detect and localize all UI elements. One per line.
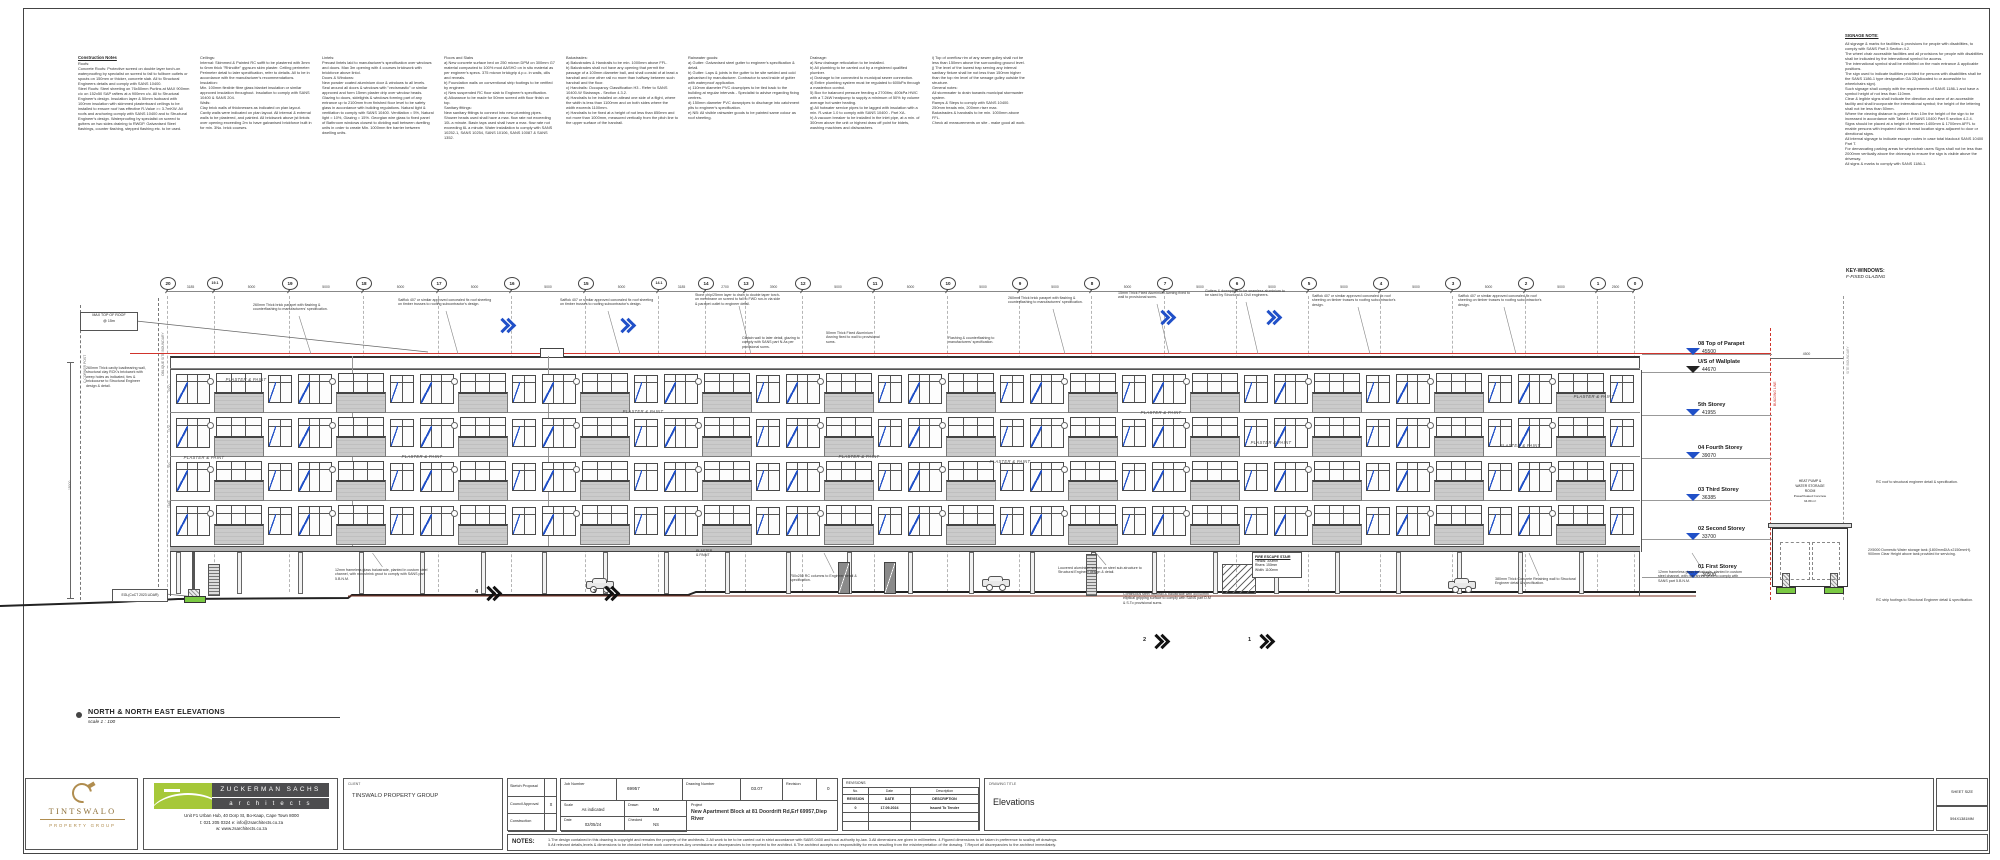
window-casement-double: [1366, 375, 1390, 403]
floor-line: [170, 456, 1640, 457]
annotation-callout: 260mm Thick cavity loadbearing wall, str…: [86, 366, 150, 388]
balcony-balustrade-panel: [214, 480, 264, 501]
window-casement-triple: [1396, 462, 1430, 492]
window-casement-triple: [1274, 374, 1308, 404]
balcony-balustrade-panel: [458, 436, 508, 457]
window-code-tag: [451, 510, 458, 517]
window-casement-double: [1366, 507, 1390, 535]
grid-dim-value: 2500: [1612, 285, 1620, 289]
window-code-tag: [573, 422, 580, 429]
ground-column: [1518, 552, 1523, 594]
zs-address-3: w: www.zsarchitects.co.za: [144, 826, 339, 833]
plaster-paint-label: PLASTER & PAINT: [1574, 394, 1615, 399]
drawn-checked-col: DrawnNMCheckedNS: [625, 801, 687, 832]
window-casement-double: [1122, 507, 1146, 535]
titleblock-notes-label: NOTES:: [512, 839, 535, 845]
approval-box: Sketch ProposalCouncil ApprovalxConstruc…: [507, 778, 557, 831]
grid-bubble: 14.1: [651, 277, 667, 290]
ground-column: [1335, 552, 1340, 594]
grid-dim-value: 3900: [770, 285, 778, 289]
window-casement-triple: [1030, 418, 1064, 448]
grid-bubble: 5: [1301, 277, 1317, 290]
grid-dim-value: 5000: [1124, 285, 1132, 289]
job-cell-text: Drawing Number: [686, 782, 740, 786]
window-casement-double: [634, 463, 658, 491]
window-casement-double: [1366, 463, 1390, 491]
annotation-callout: Stone chip/25mm layer to drain to double…: [695, 293, 783, 306]
level-label: 04 Fourth Storey: [1698, 445, 1742, 451]
window-casement-triple: [542, 374, 576, 404]
notes-column: Lintels: Precast lintels laid to manufac…: [322, 55, 434, 155]
window-code-tag: [1305, 466, 1312, 473]
window-casement-double: [1366, 419, 1390, 447]
job-top-row: Job Number69957Drawing Number03.07Revisi…: [561, 779, 838, 801]
titleblock-note-line-2: 5.All relevant details,levels & dimensio…: [548, 843, 1978, 848]
balcony-balustrade-panel: [580, 436, 630, 457]
window-casement-triple: [298, 506, 332, 536]
window-casement-double: [268, 419, 292, 447]
balcony-balustrade-panel: [336, 392, 386, 413]
window-casement-triple: [420, 462, 454, 492]
window-code-tag: [1427, 378, 1434, 385]
facade-dim-value: 2300: [168, 384, 172, 392]
window-casement-triple: [176, 506, 210, 536]
window-code-tag: [207, 466, 214, 473]
notes-column: Rainwater goods: a) Gutter: Galvanised s…: [688, 55, 800, 155]
approval-label: Sketch Proposal: [510, 784, 544, 792]
grid-dim-value: 5000: [397, 285, 405, 289]
car-silhouette: [982, 576, 1008, 587]
notes-column: Ceilings: Internal: Skimmed & Painted RC…: [200, 55, 312, 155]
window-code-tag: [1305, 510, 1312, 517]
zs-name: ZUCKERMAN SACHS: [212, 786, 329, 793]
grid-bubble: 7: [1157, 277, 1173, 290]
job-cell-text: 69957: [627, 786, 682, 791]
grid-dim-value: 5000: [248, 285, 256, 289]
window-code-tag: [695, 422, 702, 429]
window-code-tag: [1427, 510, 1434, 517]
ground-column: [237, 552, 242, 594]
boundary-line: [1770, 328, 1771, 600]
balcony-balustrade-panel: [1312, 392, 1362, 413]
window-casement-triple: [1152, 462, 1186, 492]
window-code-tag: [1061, 378, 1068, 385]
ground-column: [1213, 552, 1218, 594]
window-casement-double: [756, 463, 780, 491]
window-casement-triple: [1030, 462, 1064, 492]
window-casement-triple: [908, 418, 942, 448]
rev-cell: [869, 822, 911, 831]
ground-column: [969, 552, 974, 594]
job-cell-value: 69957: [617, 779, 683, 801]
approval-mark: x: [544, 797, 557, 814]
window-casement-double: [1244, 507, 1268, 535]
window-code-tag: [1549, 510, 1556, 517]
ground-wall-edge: [1639, 552, 1640, 596]
balcony-balustrade-panel: [946, 524, 996, 545]
window-code-tag: [817, 466, 824, 473]
car-wheel: [1452, 586, 1459, 593]
rev-cell: [911, 822, 979, 831]
window-code-tag: [1305, 378, 1312, 385]
rev-subheader-row: No.DateDescription: [843, 787, 979, 795]
window-code-tag: [939, 378, 946, 385]
grid-bubble: 15: [578, 277, 594, 290]
window-casement-double: [1000, 507, 1024, 535]
balcony-balustrade-panel: [1190, 480, 1240, 501]
window-code-tag: [573, 378, 580, 385]
dim-end-tick: [67, 362, 74, 363]
balcony-balustrade-panel: [458, 524, 508, 545]
car-cabin: [988, 576, 1003, 581]
signage-note-body: All signage & marks for facilities & pro…: [1845, 41, 1985, 166]
window-casement-double: [1488, 375, 1512, 403]
plaster-paint-label: PLASTER & PAINT: [226, 377, 267, 382]
window-code-tag: [817, 422, 824, 429]
window-casement-triple: [542, 506, 576, 536]
plaster-paint-label: PLASTER & PAINT: [1141, 410, 1182, 415]
tintswalo-divider: [40, 819, 125, 820]
window-code-tag: [451, 466, 458, 473]
grid-bubble: 3: [1445, 277, 1461, 290]
window-code-tag: [817, 510, 824, 517]
level-marker-icon: [1686, 533, 1700, 540]
water-tank-outline: [1780, 542, 1810, 580]
facade-dim-value: 1100: [168, 425, 172, 432]
window-casement-double: [390, 463, 414, 491]
rev-row: [843, 822, 979, 831]
grid-dim-value: 5000: [471, 285, 479, 289]
window-casement-double: [512, 507, 536, 535]
boundary-label: OBLIQUE SITE BOUNDARY: [161, 332, 165, 376]
boundary-dim-value: 4500: [1803, 352, 1811, 356]
job-cell-value: 03.07: [741, 779, 783, 801]
window-code-tag: [939, 466, 946, 473]
annotation-callout: 50mm Thick Fixed Aluminium Awning fixed …: [826, 331, 884, 344]
zs-sub: a r c h i t e c t s: [212, 797, 329, 807]
plaster-paint-label: PLASTER & PAINT: [623, 409, 664, 414]
balcony-balustrade-panel: [458, 480, 508, 501]
window-casement-triple: [1030, 506, 1064, 536]
window-casement-double: [390, 419, 414, 447]
job-cell-label: Job Number: [561, 779, 617, 801]
window-code-tag: [329, 378, 336, 385]
window-casement-triple: [1152, 374, 1186, 404]
window-casement-triple: [908, 374, 942, 404]
drawing-title-label: DRAWING TITLE: [989, 782, 1016, 786]
grid-dim-value: 3185: [187, 285, 195, 289]
window-casement-triple: [908, 462, 942, 492]
window-casement-triple: [1518, 462, 1552, 492]
view-scale: scale 1 : 100: [88, 720, 340, 725]
egl-note-box: EGL(CoCT 2023 LiDAR): [112, 589, 168, 602]
ground-column: [542, 552, 547, 594]
job-cell-label: Revision: [783, 779, 817, 801]
window-code-tag: [451, 378, 458, 385]
zs-address-2: t: 021 205 0324 e: info@zsarchitects.co.…: [144, 820, 339, 827]
notes-column-body: Roofs: Concrete Roofs: Protective screed…: [78, 61, 190, 131]
drawing-title: Elevations: [993, 797, 1035, 807]
grid-dim-value: 5000: [1051, 285, 1059, 289]
grid-dimension-line: [167, 291, 1634, 292]
grid-bubble: 19.1: [207, 277, 223, 290]
balcony-balustrade-panel: [946, 436, 996, 457]
balcony-balustrade-panel: [1190, 392, 1240, 413]
level-marker-icon: [1686, 452, 1700, 459]
notes-column-body: Balustrades: a) Balustrades & Handrails …: [566, 55, 678, 125]
grid-bubble: 14: [698, 277, 714, 290]
window-code-tag: [1427, 466, 1434, 473]
balcony-balustrade-panel: [702, 524, 752, 545]
window-casement-double: [268, 463, 292, 491]
annotation-callout: Safflok 407 or similar approved conceale…: [560, 298, 656, 307]
window-code-tag: [817, 378, 824, 385]
balcony-balustrade-panel: [214, 436, 264, 457]
approval-label: Construction: [510, 819, 544, 827]
facade-dim-value: 730: [168, 462, 172, 468]
window-casement-double: [756, 419, 780, 447]
rev-cell: Issued To Tender: [911, 804, 979, 813]
ground-column: [908, 552, 913, 594]
balcony-balustrade-panel: [1434, 436, 1484, 457]
balcony-balustrade-panel: [1556, 480, 1606, 501]
window-casement-double: [1244, 463, 1268, 491]
entrance-door: [884, 562, 896, 594]
level-marker-icon: [1686, 366, 1700, 373]
grid-dim-value: 3185: [678, 285, 686, 289]
notes-column-body: Floors and Slabs a) New concrete surface…: [444, 55, 556, 140]
window-casement-triple: [298, 374, 332, 404]
ground-column: [298, 552, 303, 594]
window-casement-double: [512, 419, 536, 447]
notes-column-body: Rainwater goods: a) Gutter: Galvanised s…: [688, 55, 800, 120]
view-title: NORTH & NORTH EAST ELEVATIONS scale 1 : …: [76, 707, 340, 725]
balcony-balustrade-panel: [336, 436, 386, 457]
window-casement-triple: [1396, 374, 1430, 404]
window-code-tag: [695, 466, 702, 473]
signage-note: SIGNAGE NOTE: All signage & marks for fa…: [1845, 33, 1985, 166]
window-casement-triple: [664, 462, 698, 492]
plaster-paint-label: PLASTER & PAINT: [1251, 440, 1292, 445]
level-label: 5th Storey: [1698, 402, 1725, 408]
ground-column: [176, 552, 181, 594]
zs-address-1: Unit F1 Urban Hub, 40 Dorp St, Bo-Kaap, …: [144, 813, 339, 820]
key-windows-note: KEY-WINDOWS: F-FIXED GLAZING: [1846, 268, 1936, 279]
window-casement-double: [1122, 375, 1146, 403]
job-cell-label: Drawing Number: [683, 779, 741, 801]
rev-header-cell: DESCRIPTION: [911, 795, 979, 804]
plaster-paint-label: PLASTER & PAINT: [402, 454, 443, 459]
titleblock-notes-strip: NOTES: 1.The design contained in this dr…: [507, 834, 1988, 851]
grid-dim-value: 2700: [721, 285, 729, 289]
balcony-balustrade-panel: [1190, 436, 1240, 457]
balcony-balustrade-panel: [1068, 524, 1118, 545]
window-casement-double: [1488, 507, 1512, 535]
info-value: As indicated: [561, 807, 625, 812]
facade-dim-value: 1955: [168, 500, 172, 508]
balcony-balustrade-panel: [1312, 436, 1362, 457]
window-code-tag: [573, 466, 580, 473]
floor-line: [170, 368, 1640, 369]
info-value: NM: [625, 807, 687, 812]
scale-date-col: ScaleAs indicatedDate02/05/24: [561, 801, 625, 832]
job-cell-text: 0: [827, 786, 837, 791]
window-casement-double: [390, 375, 414, 403]
rev-cell: 0: [843, 804, 869, 813]
window-casement-triple: [786, 374, 820, 404]
rev-header-cell: REVISION: [843, 795, 869, 804]
annotation-callout: Louvered aluminium screen on steel sub-s…: [1058, 566, 1154, 575]
rev-cell: [843, 813, 869, 822]
window-code-tag: [695, 378, 702, 385]
balcony-balustrade-panel: [824, 392, 874, 413]
grid-bubble: 8: [1084, 277, 1100, 290]
balcony-balustrade-panel: [580, 524, 630, 545]
window-code-tag: [1549, 466, 1556, 473]
boundary-label: BUILDING LINE: [1773, 382, 1777, 407]
ground-column: [786, 552, 791, 594]
annotation-callout: RC strip footings to Structural Engineer…: [1876, 598, 1976, 602]
window-casement-triple: [420, 374, 454, 404]
window-casement-double: [512, 375, 536, 403]
boundary-line: [158, 298, 159, 602]
signage-note-title: SIGNAGE NOTE:: [1845, 33, 1985, 39]
window-casement-triple: [298, 418, 332, 448]
window-casement-triple: [176, 418, 210, 448]
window-casement-triple: [664, 506, 698, 536]
annotation-callout: 2X5000 Domestic Water storage tank (1800…: [1868, 548, 1980, 557]
balcony-balustrade-panel: [824, 524, 874, 545]
window-code-tag: [573, 510, 580, 517]
zs-logo-dark: ZUCKERMAN SACHS a r c h i t e c t s: [212, 783, 329, 809]
window-casement-double: [268, 507, 292, 535]
window-casement-double: [878, 463, 902, 491]
balcony-balustrade-panel: [702, 392, 752, 413]
level-label: 02 Second Storey: [1698, 526, 1745, 532]
boundary-line: [80, 305, 81, 600]
car-silhouette: [1448, 578, 1474, 589]
rev-row: [843, 813, 979, 822]
first-floor-slab: [170, 546, 1640, 552]
grid-bubble: 13: [738, 277, 754, 290]
grid-dim-value: 5000: [979, 285, 987, 289]
louvre-vent: [208, 564, 220, 596]
level-label: U/S of Wallplate: [1698, 359, 1740, 365]
job-cell-text: 03.07: [751, 786, 782, 791]
balcony-balustrade-panel: [1312, 480, 1362, 501]
approval-row: Council Approvalx: [508, 797, 557, 815]
notes-column-body: Lintels: Precast lintels laid to manufac…: [322, 55, 434, 135]
window-casement-double: [756, 507, 780, 535]
rev-header-cell: DATE: [869, 795, 911, 804]
window-casement-double: [634, 419, 658, 447]
window-code-tag: [1549, 378, 1556, 385]
car-wheel: [986, 584, 993, 591]
grid-bubble: 19: [282, 277, 298, 290]
window-casement-triple: [176, 462, 210, 492]
grid-dim-value: 5000: [1412, 285, 1420, 289]
max-roof-note-box: MAX TOP OF ROOF @ 15m: [80, 312, 138, 331]
fire-escape-line: Width: 1100mm: [1255, 568, 1299, 572]
car-wheel: [1465, 586, 1472, 593]
window-casement-triple: [1396, 506, 1430, 536]
window-code-tag: [1305, 422, 1312, 429]
window-code-tag: [329, 510, 336, 517]
corner-post: [192, 552, 195, 594]
window-casement-triple: [298, 462, 332, 492]
balcony-balustrade-panel: [580, 480, 630, 501]
plaster-paint-label: PLASTER & PAINT: [1500, 443, 1541, 448]
window-code-tag: [1061, 422, 1068, 429]
window-code-tag: [1183, 466, 1190, 473]
window-casement-double: [1610, 463, 1634, 491]
info-value: NS: [625, 822, 687, 827]
window-casement-double: [1122, 419, 1146, 447]
window-code-tag: [1183, 378, 1190, 385]
job-info-box: Job Number69957Drawing Number03.07Revisi…: [560, 778, 838, 831]
level-value: 45500: [1702, 349, 1716, 355]
view-title-bullet: [76, 712, 82, 718]
project-cell: ProjectNew Apartment Block at 81 Doordri…: [687, 801, 838, 832]
ground-column: [1396, 552, 1401, 594]
key-windows-body: F-FIXED GLAZING: [1846, 274, 1936, 279]
drawing-sheet: Construction NotesRoofs: Concrete Roofs:…: [0, 0, 2000, 860]
window-casement-triple: [420, 418, 454, 448]
grid-bubble: 1: [1590, 277, 1606, 290]
window-casement-triple: [786, 418, 820, 448]
annotation-callout: Safflok 407 or similar approved conceale…: [1312, 294, 1404, 307]
window-casement-triple: [1396, 418, 1430, 448]
window-code-tag: [1183, 510, 1190, 517]
project-label: Project: [691, 803, 838, 807]
louvre-vent: [1086, 554, 1097, 596]
plaster-paint-label: PLASTER & PAINT: [839, 454, 880, 459]
annotation-callout: 15mm Thick Fixed Aluminium Awning fixed …: [1118, 291, 1196, 300]
tintswalo-sub: PROPERTY GROUP: [26, 823, 139, 828]
grid-bubble: 10: [940, 277, 956, 290]
level-marker-icon: [1686, 348, 1700, 355]
drawing-title-box: DRAWING TITLE Elevations: [984, 778, 1934, 831]
max-roof-line: [130, 353, 1770, 354]
annotation-callout: 12mm frameless glass balustrade, planted…: [335, 568, 430, 581]
balcony-balustrade-panel: [336, 524, 386, 545]
annotation-callout: 750x250 RC columns to Engineer detail & …: [790, 574, 878, 583]
client-label: CLIENT: [348, 782, 360, 786]
window-casement-triple: [542, 418, 576, 448]
ground-column: [1030, 552, 1035, 594]
window-casement-triple: [1518, 506, 1552, 536]
balcony-balustrade-panel: [702, 480, 752, 501]
window-code-tag: [207, 510, 214, 517]
zs-logo-green: [154, 783, 212, 809]
heat-room-label: HEAT PUMP & WATER STORAGE ROOM PowerFloa…: [1778, 479, 1842, 519]
window-casement-triple: [786, 462, 820, 492]
window-casement-double: [1244, 375, 1268, 403]
window-code-tag: [207, 378, 214, 385]
plaster-paint-label: PLASTER & PAINT: [990, 459, 1031, 464]
window-code-tag: [329, 422, 336, 429]
level-label: 08 Top of Parapet: [1698, 341, 1745, 347]
window-casement-double: [1488, 463, 1512, 491]
water-tank-outline: [1812, 542, 1840, 580]
rev-cell: [843, 822, 869, 831]
window-casement-double: [512, 463, 536, 491]
window-casement-triple: [664, 374, 698, 404]
rev-cell: 17.09.2024: [869, 804, 911, 813]
balcony-balustrade-panel: [1434, 524, 1484, 545]
boundary-label: SITE BOUNDARY: [1846, 346, 1850, 374]
window-casement-double: [634, 507, 658, 535]
